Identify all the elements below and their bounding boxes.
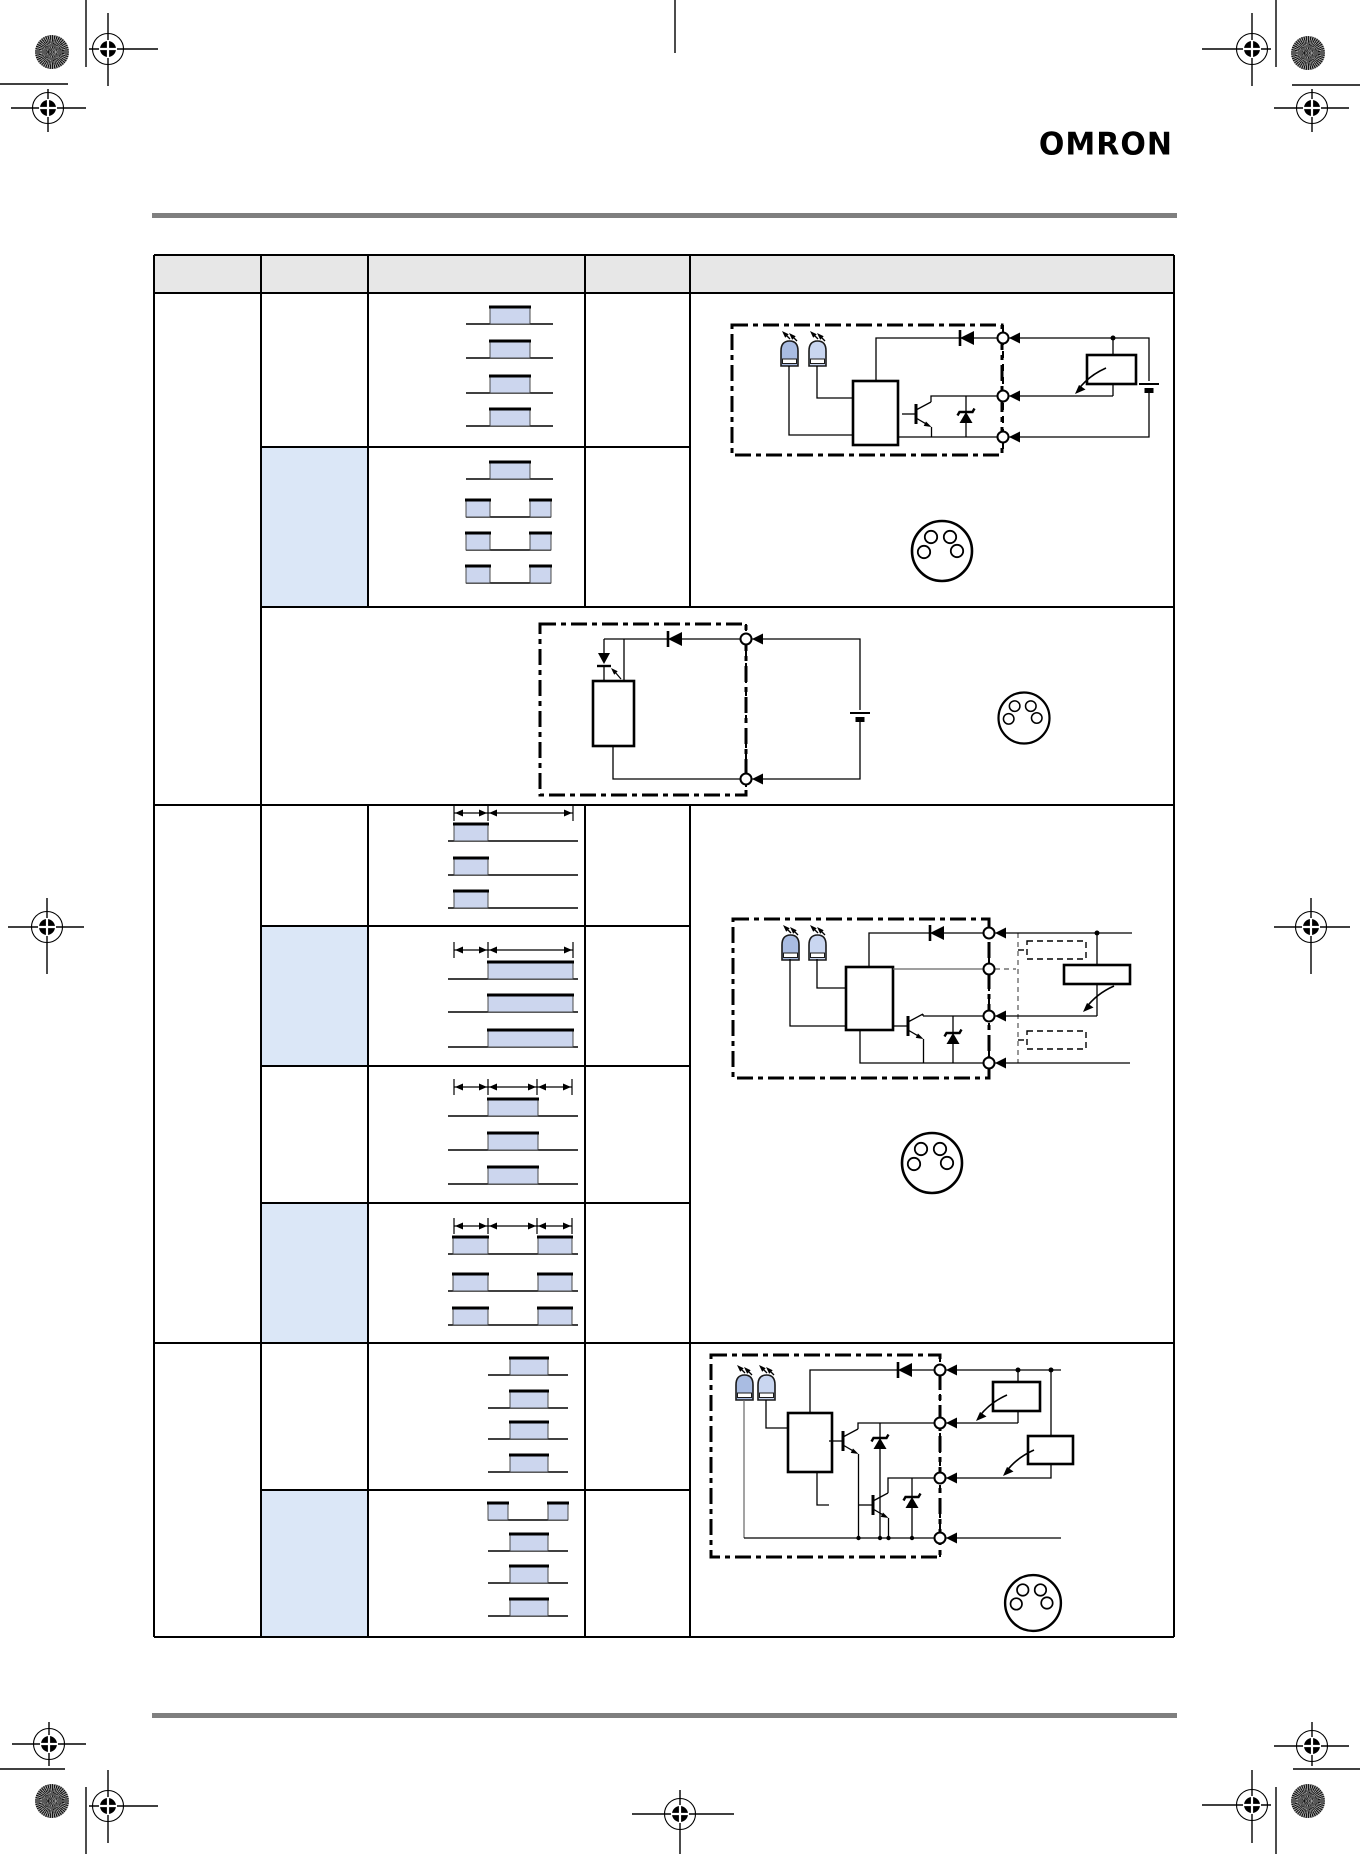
- terminal-circle: [998, 432, 1009, 443]
- pulse-waveform: [448, 1099, 578, 1116]
- complementary-waveform: [465, 533, 552, 550]
- pulse-waveform: [448, 824, 578, 841]
- dimension-line: [454, 1218, 572, 1234]
- terminal-circle: [998, 333, 1009, 344]
- terminal-circle: [741, 634, 752, 645]
- load-box: [1028, 1436, 1073, 1464]
- pulse-waveform: [448, 1030, 578, 1047]
- wire-arrowhead: [752, 774, 763, 785]
- pulse-waveform: [466, 462, 553, 479]
- dimension-line: [454, 942, 573, 958]
- battery-icon: [850, 713, 870, 720]
- diode-icon: [960, 330, 974, 346]
- indicator-led-icon: [809, 925, 826, 960]
- double-pulse-waveform: [448, 1308, 578, 1325]
- indicator-led-icon: [758, 1365, 775, 1400]
- load-box: [1064, 965, 1130, 984]
- wire-arrowhead: [995, 1058, 1006, 1069]
- terminal-circle: [935, 1418, 946, 1429]
- complementary-waveform: [487, 1503, 569, 1520]
- circuit-dc-2wire: [540, 624, 1050, 795]
- double-pulse-waveform: [448, 1274, 578, 1291]
- amplifier-box: [846, 967, 893, 1030]
- terminal-circle: [984, 964, 995, 975]
- m12-connector-icon: [902, 1133, 962, 1193]
- battery-icon: [1139, 384, 1159, 391]
- pulse-waveform: [448, 995, 578, 1012]
- m12-connector-icon: [999, 693, 1050, 744]
- transistor-icon: [902, 402, 932, 427]
- top-rule: [152, 213, 1177, 218]
- m12-connector-icon: [912, 521, 972, 581]
- terminal-circle: [984, 1011, 995, 1022]
- amplifier-box: [593, 681, 634, 746]
- bottom-rule: [152, 1713, 1177, 1718]
- transistor-icon: [859, 1493, 889, 1518]
- load-action-arrow: [1075, 368, 1106, 394]
- light-arrow: [615, 672, 621, 679]
- indicator-led-icon: [782, 925, 799, 960]
- terminal-circle: [998, 391, 1009, 402]
- pulse-waveform: [448, 858, 578, 875]
- terminal-circle: [935, 1533, 946, 1544]
- circuit-npn-output: [732, 325, 1159, 581]
- pulse-waveform: [448, 962, 578, 979]
- pulse-waveform: [448, 1167, 578, 1184]
- load-box: [1087, 355, 1136, 384]
- circuit-npn-output-options: [733, 919, 1132, 1193]
- double-pulse-waveform: [448, 1237, 578, 1254]
- diode-icon: [898, 1362, 912, 1378]
- transistor-icon: [829, 1429, 859, 1454]
- pulse-waveform: [466, 341, 553, 358]
- wire-arrowhead: [1009, 391, 1020, 402]
- wire-arrowhead: [946, 1533, 957, 1544]
- pulse-waveform: [466, 376, 553, 393]
- timing-charts: [448, 307, 578, 1616]
- wire-arrowhead: [752, 634, 763, 645]
- terminal-circle: [984, 1058, 995, 1069]
- wire-arrowhead: [995, 928, 1006, 939]
- wire-arrowhead: [1009, 432, 1020, 443]
- wire-arrowhead: [1009, 333, 1020, 344]
- pulse-waveform: [488, 1534, 568, 1551]
- diode-icon: [668, 631, 682, 647]
- wire-arrowhead: [995, 1011, 1006, 1022]
- pulse-waveform: [488, 1391, 568, 1408]
- spec-table: [154, 255, 1174, 1637]
- terminal-circle: [984, 928, 995, 939]
- wire-arrowhead: [946, 1365, 957, 1376]
- diode-icon: [930, 925, 944, 941]
- pulse-waveform: [466, 409, 553, 426]
- wire-arrowhead: [946, 1418, 957, 1429]
- transistor-icon: [894, 1014, 924, 1039]
- indicator-led-icon: [809, 331, 826, 366]
- dimension-line: [454, 1079, 572, 1095]
- page-artwork: [0, 0, 1360, 1854]
- indicator-led-icon: [781, 331, 798, 366]
- indicator-led-icon: [736, 1365, 753, 1400]
- optional-block-dashed: [1027, 1031, 1086, 1049]
- optional-block-dashed: [1027, 941, 1086, 959]
- terminal-circle: [935, 1473, 946, 1484]
- circuit-dual-npn-output: [711, 1355, 1073, 1631]
- pulse-waveform: [488, 1566, 568, 1583]
- wire-arrowhead: [946, 1473, 957, 1484]
- complementary-waveform: [465, 500, 552, 517]
- pulse-waveform: [488, 1455, 568, 1472]
- terminal-circle: [935, 1365, 946, 1376]
- pulse-waveform: [488, 1599, 568, 1616]
- table-header-row: [155, 256, 1173, 292]
- pulse-waveform: [448, 1133, 578, 1150]
- pulse-waveform: [488, 1422, 568, 1439]
- terminal-circle: [741, 774, 752, 785]
- load-box: [993, 1382, 1040, 1411]
- load-action-arrow: [976, 1395, 1007, 1421]
- amplifier-box: [853, 381, 898, 445]
- load-action-arrow: [1083, 986, 1114, 1012]
- highlighted-cells: [262, 448, 367, 1636]
- amplifier-box: [788, 1413, 832, 1472]
- datasheet-page: OMRON: [0, 0, 1360, 1854]
- pulse-waveform: [488, 1358, 568, 1375]
- m12-connector-icon: [1005, 1575, 1061, 1631]
- pulse-waveform: [448, 891, 578, 908]
- dimension-line: [454, 805, 573, 821]
- pulse-waveform: [466, 307, 553, 324]
- complementary-waveform: [465, 566, 552, 583]
